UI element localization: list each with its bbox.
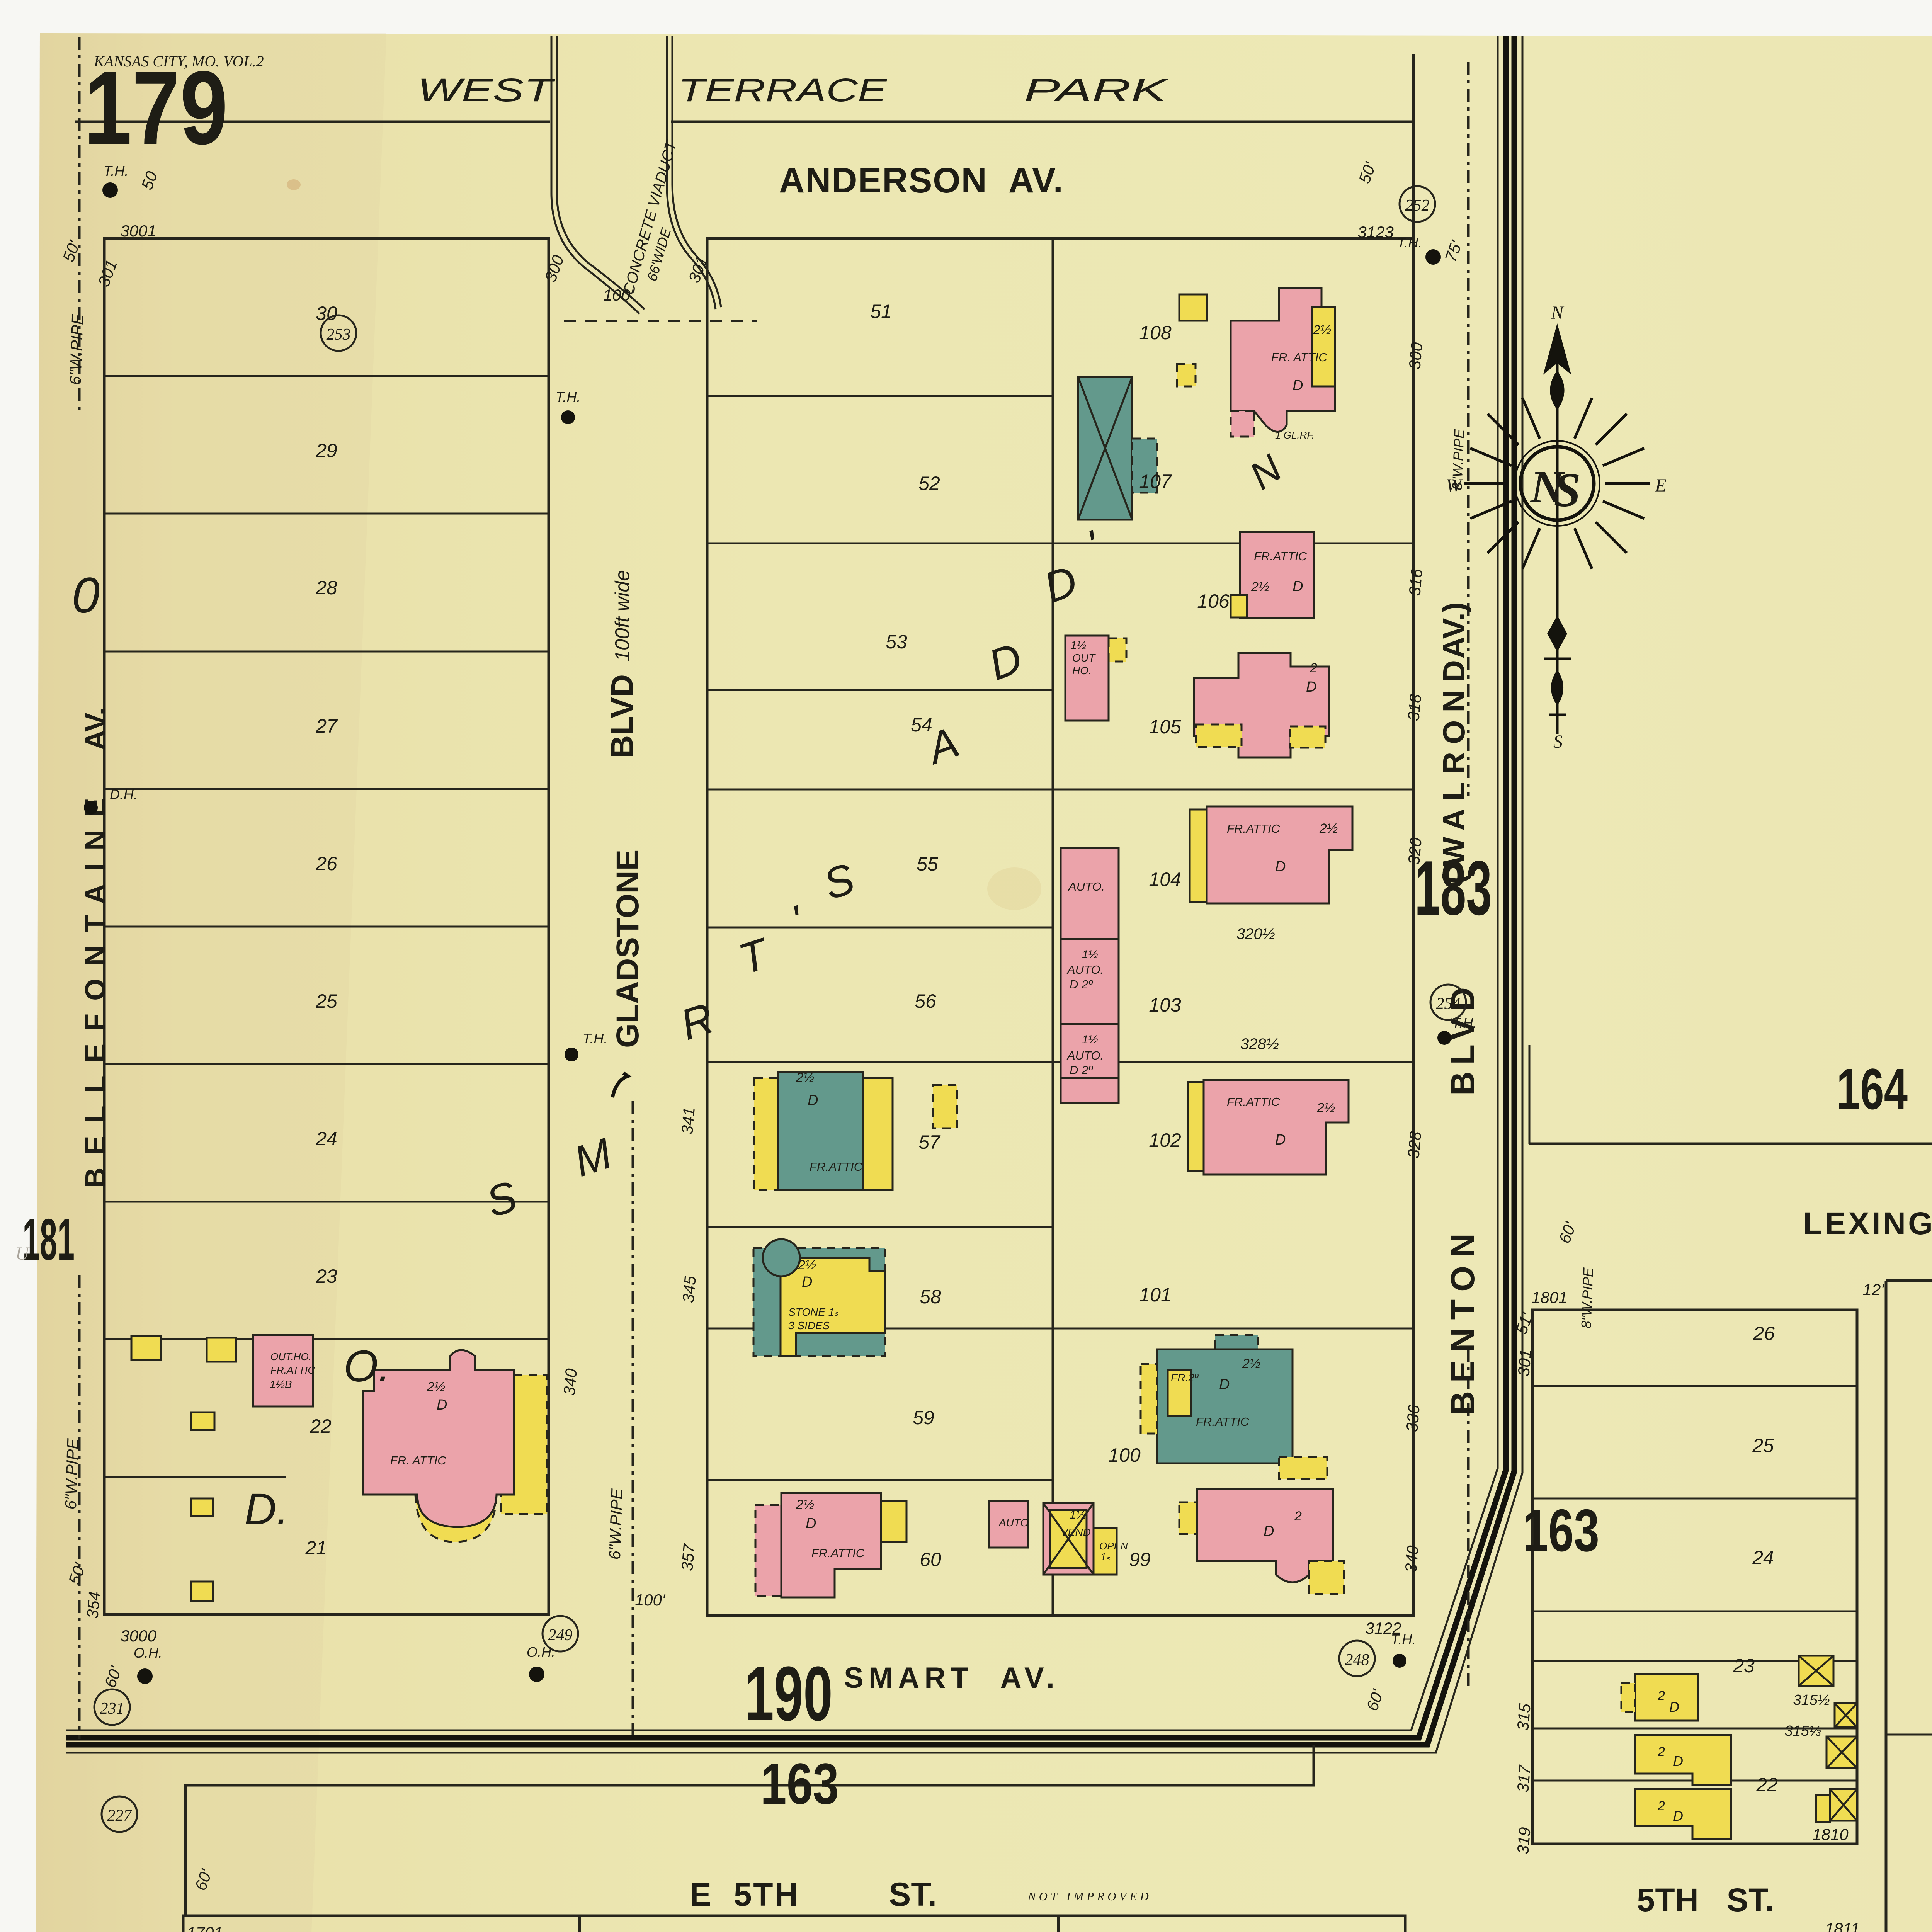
svg-text:T.H.: T.H. xyxy=(583,1031,608,1046)
svg-text:316: 316 xyxy=(1405,568,1426,597)
svg-text:2½: 2½ xyxy=(798,1258,816,1272)
svg-text:318: 318 xyxy=(1404,693,1425,722)
svg-text:2½: 2½ xyxy=(1242,1356,1260,1371)
svg-text:315½: 315½ xyxy=(1793,1692,1830,1708)
svg-text:23: 23 xyxy=(315,1265,337,1287)
svg-text:3000: 3000 xyxy=(120,1627,156,1645)
svg-text:319: 319 xyxy=(1514,1827,1534,1855)
svg-text:100: 100 xyxy=(1108,1444,1141,1466)
svg-text:254: 254 xyxy=(1436,995,1461,1013)
svg-text:1½: 1½ xyxy=(1082,948,1098,961)
svg-text:D: D xyxy=(1275,859,1286,875)
svg-text:FR. ATTIC: FR. ATTIC xyxy=(390,1454,446,1467)
svg-text:2½: 2½ xyxy=(1316,1100,1335,1115)
svg-text:54: 54 xyxy=(911,714,932,736)
svg-text:320: 320 xyxy=(1405,837,1425,866)
svg-text:56: 56 xyxy=(915,990,936,1012)
svg-text:D 2º: D 2º xyxy=(1070,978,1093,991)
svg-text:5TH ST.: 5TH ST. xyxy=(1637,1882,1774,1918)
svg-text:PARK: PARK xyxy=(1024,72,1170,108)
svg-text:ST.: ST. xyxy=(889,1876,937,1913)
svg-text:1½: 1½ xyxy=(1070,1509,1086,1521)
svg-text:317: 317 xyxy=(1514,1764,1534,1793)
svg-text:12': 12' xyxy=(1863,1281,1885,1299)
svg-text:51: 51 xyxy=(870,301,892,322)
svg-text:S: S xyxy=(1553,731,1563,752)
svg-text:O.: O. xyxy=(344,1342,390,1391)
svg-text:340: 340 xyxy=(560,1367,580,1396)
svg-text:23: 23 xyxy=(1733,1655,1755,1677)
svg-text:2: 2 xyxy=(1294,1509,1302,1524)
svg-text:59: 59 xyxy=(913,1407,934,1429)
svg-text:OUT.HO.: OUT.HO. xyxy=(270,1351,311,1362)
svg-text:253: 253 xyxy=(327,326,351,344)
svg-text:341: 341 xyxy=(678,1107,698,1135)
svg-text:OUT: OUT xyxy=(1072,652,1096,664)
svg-text:1½B: 1½B xyxy=(270,1378,292,1390)
svg-text:24: 24 xyxy=(315,1128,337,1150)
svg-text:328½: 328½ xyxy=(1240,1036,1279,1053)
svg-text:164: 164 xyxy=(1837,1056,1908,1121)
svg-text:27: 27 xyxy=(315,715,338,737)
svg-text:3001: 3001 xyxy=(120,222,156,240)
svg-text:D: D xyxy=(1275,1132,1286,1148)
svg-text:100': 100' xyxy=(603,286,634,304)
svg-text:D: D xyxy=(806,1515,816,1532)
svg-text:354: 354 xyxy=(83,1591,104,1619)
svg-text:1801: 1801 xyxy=(1531,1288,1567,1306)
svg-text:T.H.: T.H. xyxy=(104,163,129,179)
svg-text:101: 101 xyxy=(1139,1284,1171,1306)
svg-text:D: D xyxy=(802,1274,812,1290)
svg-text:231: 231 xyxy=(100,1700,124,1718)
svg-text:163: 163 xyxy=(1523,1497,1599,1564)
svg-text:2½: 2½ xyxy=(1313,323,1331,337)
svg-text:D: D xyxy=(1673,1753,1683,1769)
svg-text:60: 60 xyxy=(920,1549,941,1570)
svg-text:D: D xyxy=(1219,1376,1230,1393)
svg-text:6"W.PIPE: 6"W.PIPE xyxy=(605,1488,626,1560)
svg-text:340: 340 xyxy=(1401,1544,1422,1573)
svg-text:FR.ATTIC: FR.ATTIC xyxy=(1227,822,1280,835)
svg-text:21: 21 xyxy=(305,1537,327,1559)
svg-text:KANSAS CITY, MO. VOL.2: KANSAS CITY, MO. VOL.2 xyxy=(94,53,264,70)
svg-text:FR.ATTIC: FR.ATTIC xyxy=(1196,1415,1249,1429)
svg-text:1ₛ: 1ₛ xyxy=(1100,1551,1110,1563)
svg-text:105: 105 xyxy=(1149,716,1181,738)
svg-text:OPEN: OPEN xyxy=(1099,1540,1128,1552)
svg-text:1½: 1½ xyxy=(1070,639,1087,652)
svg-text:T.H.: T.H. xyxy=(1391,1631,1416,1647)
svg-text:2: 2 xyxy=(1657,1799,1665,1813)
svg-text:D: D xyxy=(1293,578,1303,595)
svg-text:328: 328 xyxy=(1404,1130,1425,1159)
svg-text:FR.ATTIC: FR.ATTIC xyxy=(811,1546,865,1560)
svg-text:NOT IMPROVED: NOT IMPROVED xyxy=(1027,1889,1152,1903)
svg-text:STONE 1ₛ: STONE 1ₛ xyxy=(788,1306,838,1318)
svg-text:55: 55 xyxy=(917,853,938,875)
svg-text:100ft wide: 100ft wide xyxy=(611,570,634,662)
svg-text:163: 163 xyxy=(760,1751,839,1816)
svg-text:100': 100' xyxy=(635,1591,666,1609)
svg-text:D.H.: D.H. xyxy=(110,786,138,802)
svg-text:106: 106 xyxy=(1197,590,1230,612)
svg-text:1 GL.RF.: 1 GL.RF. xyxy=(1275,429,1315,441)
svg-text:2½: 2½ xyxy=(1251,580,1269,594)
svg-text:108: 108 xyxy=(1139,322,1172,344)
svg-text:O.H.: O.H. xyxy=(134,1645,162,1661)
svg-text:1810: 1810 xyxy=(1812,1825,1849,1844)
svg-text:T.H.: T.H. xyxy=(1397,235,1422,250)
svg-text:2½: 2½ xyxy=(796,1497,814,1512)
svg-text:248: 248 xyxy=(1345,1651,1369,1669)
svg-text:300: 300 xyxy=(1405,341,1426,370)
svg-text:AUTO.: AUTO. xyxy=(1066,1049,1104,1062)
svg-text:1½: 1½ xyxy=(1082,1033,1098,1046)
svg-text:315⅓: 315⅓ xyxy=(1784,1723,1821,1739)
svg-text:301: 301 xyxy=(1514,1349,1535,1377)
svg-text:U: U xyxy=(15,1243,30,1264)
svg-text:2: 2 xyxy=(1657,1689,1665,1703)
svg-text:25: 25 xyxy=(315,990,337,1012)
svg-text:ANDERSON AV.: ANDERSON AV. xyxy=(779,161,1063,200)
svg-text:22: 22 xyxy=(310,1415,332,1437)
svg-text:2: 2 xyxy=(1310,661,1317,675)
svg-text:357: 357 xyxy=(678,1543,698,1572)
svg-text:29: 29 xyxy=(315,440,337,461)
svg-text:WEST: WEST xyxy=(417,72,556,108)
svg-text:3 SIDES: 3 SIDES xyxy=(788,1320,830,1332)
svg-text:E 5TH: E 5TH xyxy=(690,1876,798,1913)
svg-text:58: 58 xyxy=(920,1286,941,1308)
svg-text:57: 57 xyxy=(918,1131,941,1153)
svg-text:2½: 2½ xyxy=(1319,821,1338,836)
svg-text:25: 25 xyxy=(1752,1435,1774,1456)
svg-text:8"W.PIPE: 8"W.PIPE xyxy=(1578,1267,1596,1329)
svg-text:227: 227 xyxy=(107,1807,133,1825)
svg-text:28: 28 xyxy=(315,577,337,599)
svg-text:D: D xyxy=(437,1397,447,1413)
svg-text:D: D xyxy=(1293,378,1303,394)
svg-text:VEND: VEND xyxy=(1061,1526,1091,1538)
svg-text:107: 107 xyxy=(1139,471,1172,492)
svg-text:26: 26 xyxy=(1753,1323,1775,1344)
svg-text:TERRACE: TERRACE xyxy=(678,72,887,108)
svg-text:GLADSTONE: GLADSTONE xyxy=(610,850,645,1048)
svg-text:BLVD: BLVD xyxy=(605,674,640,758)
svg-text:S: S xyxy=(1554,464,1581,517)
svg-text:2: 2 xyxy=(1657,1745,1665,1759)
svg-text:FR.2º: FR.2º xyxy=(1171,1372,1199,1384)
svg-text:1811: 1811 xyxy=(1825,1920,1860,1932)
svg-text:249: 249 xyxy=(548,1626,573,1644)
svg-text:AUTO.: AUTO. xyxy=(1066,963,1104,976)
svg-text:FR.ATTIC: FR.ATTIC xyxy=(270,1364,315,1376)
svg-text:D: D xyxy=(1264,1523,1274,1539)
svg-text:D 2º: D 2º xyxy=(1070,1063,1093,1077)
svg-text:FR. ATTIC: FR. ATTIC xyxy=(1271,350,1327,364)
svg-text:2½: 2½ xyxy=(796,1070,814,1085)
svg-text:AV.: AV. xyxy=(79,707,111,750)
svg-text:AUTO.: AUTO. xyxy=(1068,880,1105,893)
svg-text:26: 26 xyxy=(315,853,337,874)
svg-text:0: 0 xyxy=(72,567,100,623)
svg-text:(WALROND: (WALROND xyxy=(1437,660,1471,884)
svg-text:1701: 1701 xyxy=(187,1923,223,1932)
svg-text:22: 22 xyxy=(1756,1774,1778,1796)
svg-text:FR.ATTIC: FR.ATTIC xyxy=(1254,549,1307,563)
svg-text:3123: 3123 xyxy=(1357,223,1393,241)
svg-text:AUTO: AUTO xyxy=(998,1517,1029,1529)
svg-text:103: 103 xyxy=(1149,994,1181,1016)
svg-text:D.: D. xyxy=(245,1485,289,1534)
svg-text:D: D xyxy=(1306,679,1316,695)
svg-text:99: 99 xyxy=(1129,1549,1151,1570)
svg-text:D: D xyxy=(1669,1699,1679,1715)
svg-text:D: D xyxy=(1673,1808,1683,1824)
svg-text:52: 52 xyxy=(918,473,940,494)
svg-text:6"W.PIPE: 6"W.PIPE xyxy=(61,1438,82,1510)
svg-text:D: D xyxy=(808,1092,818,1109)
svg-text:E: E xyxy=(1655,475,1666,496)
svg-text:FR.ATTIC: FR.ATTIC xyxy=(1227,1095,1280,1109)
svg-text:345: 345 xyxy=(679,1275,699,1304)
svg-text:181: 181 xyxy=(22,1207,75,1272)
svg-text:102: 102 xyxy=(1149,1129,1181,1151)
svg-text:252: 252 xyxy=(1405,197,1430,214)
svg-text:O.H.: O.H. xyxy=(527,1644,555,1660)
svg-text:N: N xyxy=(1551,303,1565,323)
svg-text:W: W xyxy=(1446,475,1463,496)
svg-text:HO.: HO. xyxy=(1072,665,1092,677)
svg-text:AV.): AV.) xyxy=(1437,602,1471,659)
svg-text:24: 24 xyxy=(1752,1547,1774,1568)
svg-text:6"W.PIPE: 6"W.PIPE xyxy=(66,313,87,385)
svg-text:FR.ATTIC: FR.ATTIC xyxy=(810,1160,863,1173)
svg-text:T.H.: T.H. xyxy=(556,389,581,405)
svg-text:320½: 320½ xyxy=(1236,925,1275,942)
svg-text:315: 315 xyxy=(1514,1702,1534,1731)
svg-text:53: 53 xyxy=(886,631,907,653)
svg-text:336: 336 xyxy=(1403,1404,1423,1433)
svg-text:190: 190 xyxy=(745,1651,833,1737)
svg-text:2½: 2½ xyxy=(427,1379,445,1394)
svg-text:104: 104 xyxy=(1149,869,1181,890)
